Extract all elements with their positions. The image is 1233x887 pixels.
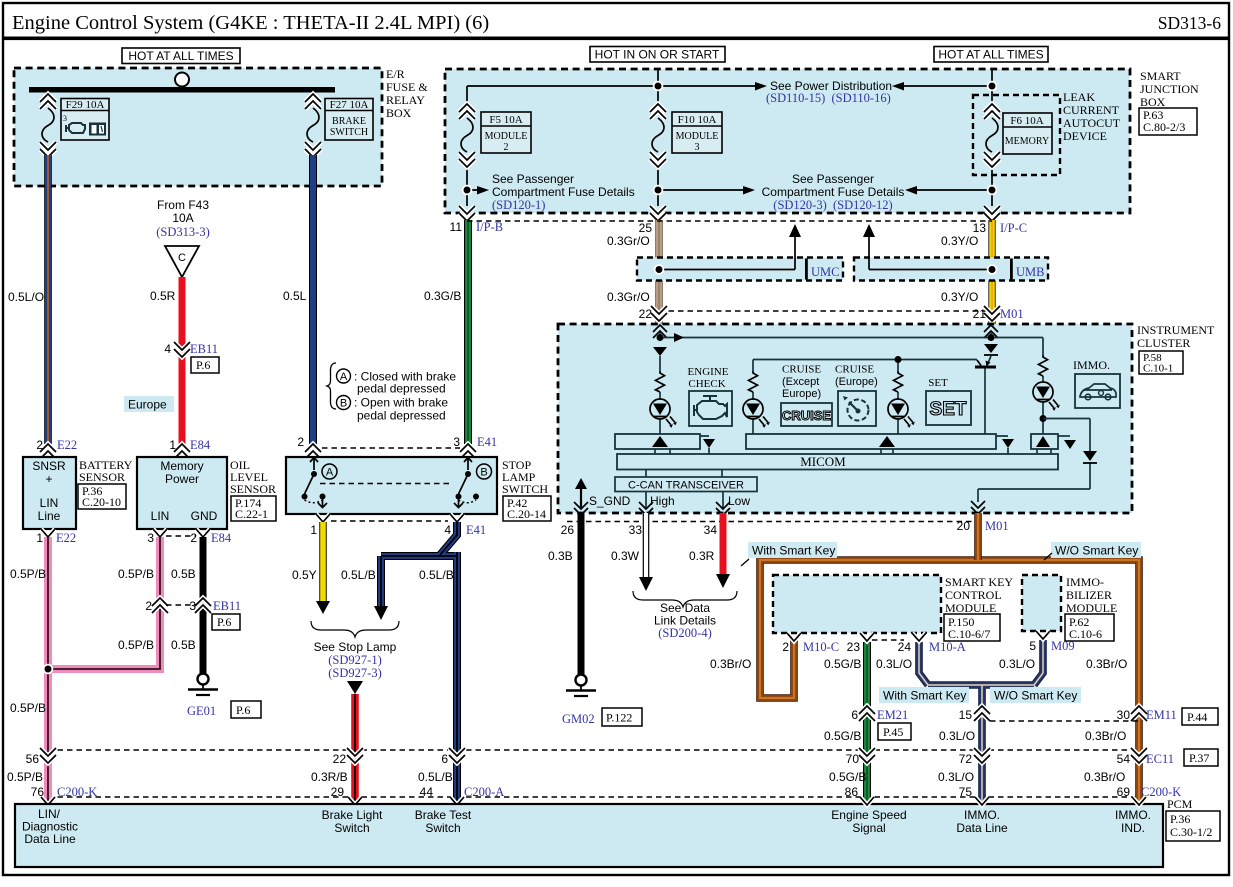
svg-text:See Passenger: See Passenger — [492, 172, 574, 186]
svg-text:C: C — [178, 252, 186, 264]
svg-text:34: 34 — [704, 523, 718, 537]
svg-text:2: 2 — [297, 435, 304, 449]
svg-text:0.5L/O: 0.5L/O — [8, 290, 44, 304]
svg-text:0.3Gr/O: 0.3Gr/O — [607, 234, 650, 248]
svg-text:Compartment Fuse Details: Compartment Fuse Details — [762, 185, 905, 199]
svg-text:0.3Y/O: 0.3Y/O — [941, 290, 978, 304]
svg-text:(SD110-15) (SD110-16): (SD110-15) (SD110-16) — [766, 91, 891, 105]
svg-text:Brake Test: Brake Test — [415, 808, 472, 822]
svg-text:INSTRUMENT: INSTRUMENT — [1137, 323, 1215, 337]
svg-text:HOT AT ALL TIMES: HOT AT ALL TIMES — [938, 48, 1043, 62]
svg-text:0.5P/B: 0.5P/B — [118, 567, 154, 581]
svg-text:0.3Br/O: 0.3Br/O — [1086, 657, 1127, 671]
svg-text:F5 10A: F5 10A — [489, 114, 522, 126]
svg-text:MODULE: MODULE — [1066, 601, 1117, 615]
svg-text:C.10-1: C.10-1 — [1143, 363, 1173, 375]
svg-text:(SD927-1): (SD927-1) — [328, 653, 381, 667]
svg-text:26: 26 — [561, 523, 575, 537]
svg-text:IND.: IND. — [1121, 821, 1145, 835]
svg-text:C.22-1: C.22-1 — [235, 507, 268, 521]
svg-text:P.45: P.45 — [883, 725, 903, 739]
svg-text:M01: M01 — [985, 519, 1009, 533]
svg-text:0.3R/B: 0.3R/B — [311, 770, 348, 784]
svg-text:C-CAN TRANSCEIVER: C-CAN TRANSCEIVER — [628, 480, 744, 492]
svg-text:BILIZER: BILIZER — [1066, 588, 1112, 602]
svg-text:Low: Low — [728, 494, 750, 508]
svg-text:+: + — [45, 472, 52, 486]
svg-text:MEMORY: MEMORY — [1005, 136, 1049, 147]
svg-text:Switch: Switch — [425, 821, 460, 835]
svg-text:P.36: P.36 — [1170, 812, 1190, 826]
svg-text:(SD120-3) (SD120-12): (SD120-3) (SD120-12) — [773, 198, 892, 212]
svg-text:E41: E41 — [477, 435, 497, 449]
svg-text:AUTOCUT: AUTOCUT — [1063, 116, 1121, 130]
svg-text:3: 3 — [63, 114, 67, 123]
svg-text:0.3L/O: 0.3L/O — [938, 770, 974, 784]
svg-text:4: 4 — [444, 523, 451, 537]
svg-text:69: 69 — [1117, 785, 1131, 799]
svg-text:SET: SET — [928, 377, 948, 389]
svg-text:SENSOR: SENSOR — [230, 482, 276, 496]
svg-text:Data Line: Data Line — [956, 821, 1008, 835]
svg-text:With Smart Key: With Smart Key — [883, 689, 966, 703]
svg-text:P.122: P.122 — [606, 711, 632, 725]
svg-text:C.20-14: C.20-14 — [507, 507, 546, 521]
svg-text:10A: 10A — [172, 211, 193, 225]
svg-text:UMB: UMB — [1016, 265, 1044, 279]
svg-text:M10-A: M10-A — [929, 640, 966, 654]
svg-text:0.3L/O: 0.3L/O — [999, 657, 1035, 671]
svg-text:5: 5 — [1029, 639, 1036, 653]
svg-text:From F43: From F43 — [157, 198, 209, 212]
svg-text:(SD200-4): (SD200-4) — [658, 626, 711, 640]
svg-text:3: 3 — [695, 142, 700, 153]
svg-text:Europe): Europe) — [782, 388, 821, 400]
svg-text:GE01: GE01 — [187, 704, 216, 718]
svg-text:70: 70 — [846, 752, 860, 766]
svg-text:C200-K: C200-K — [57, 785, 97, 799]
svg-text:3: 3 — [453, 435, 460, 449]
svg-text:0.5P/B: 0.5P/B — [10, 701, 46, 715]
svg-text:Compartment Fuse Details: Compartment Fuse Details — [492, 185, 635, 199]
svg-text:LIN: LIN — [40, 496, 59, 510]
svg-text:M10-C: M10-C — [803, 640, 839, 654]
svg-text:1: 1 — [36, 531, 43, 545]
svg-text:0.3Br/O: 0.3Br/O — [710, 657, 751, 671]
svg-text:S_GND: S_GND — [589, 494, 631, 508]
svg-text:0.5Y: 0.5Y — [292, 568, 317, 582]
svg-text:SD313-6: SD313-6 — [1158, 13, 1221, 33]
svg-text:30: 30 — [1117, 708, 1131, 722]
svg-text:0.3L/O: 0.3L/O — [876, 657, 912, 671]
svg-text:SENSOR: SENSOR — [79, 470, 125, 484]
svg-text:With Smart Key: With Smart Key — [752, 544, 835, 558]
svg-text:See Stop Lamp: See Stop Lamp — [314, 640, 397, 654]
svg-text:SET: SET — [930, 399, 967, 420]
svg-text:0.5P/B: 0.5P/B — [10, 567, 46, 581]
svg-text:0.3Y/O: 0.3Y/O — [941, 234, 978, 248]
svg-text:MODULE: MODULE — [485, 131, 528, 142]
svg-text:EM11: EM11 — [1146, 708, 1177, 722]
svg-text:Power: Power — [165, 472, 199, 486]
svg-text:IMMO.: IMMO. — [1073, 358, 1110, 372]
svg-text:LEAK: LEAK — [1063, 90, 1095, 104]
svg-text:0.5L/B: 0.5L/B — [418, 770, 453, 784]
svg-text:IMMO.: IMMO. — [964, 808, 1000, 822]
svg-text:High: High — [650, 494, 675, 508]
svg-text:EC11: EC11 — [1146, 752, 1174, 766]
svg-text:0.3G/B: 0.3G/B — [424, 289, 461, 303]
svg-text:E41: E41 — [466, 523, 486, 537]
svg-text:C200-A: C200-A — [464, 785, 504, 799]
svg-text:Switch: Switch — [334, 821, 369, 835]
svg-text:GND: GND — [191, 509, 218, 523]
svg-text:(SD313-3): (SD313-3) — [156, 225, 209, 239]
svg-text:DEVICE: DEVICE — [1063, 129, 1107, 143]
svg-text:(SD927-3): (SD927-3) — [328, 666, 381, 680]
svg-text:MICOM: MICOM — [800, 454, 846, 469]
svg-text:0.5G/B: 0.5G/B — [824, 657, 861, 671]
svg-text:MODULE: MODULE — [945, 601, 996, 615]
svg-text:P.6: P.6 — [217, 615, 231, 629]
svg-text:RELAY: RELAY — [386, 93, 425, 107]
svg-text:HOT AT ALL TIMES: HOT AT ALL TIMES — [128, 49, 233, 63]
svg-text:pedal depressed: pedal depressed — [357, 409, 446, 423]
svg-text:PCM: PCM — [1167, 797, 1193, 811]
svg-text:0.5B: 0.5B — [171, 567, 196, 581]
svg-text:22: 22 — [639, 307, 653, 321]
svg-text:0.5L: 0.5L — [283, 289, 307, 303]
svg-text:(Europe): (Europe) — [835, 376, 878, 388]
svg-text:Signal: Signal — [852, 821, 885, 835]
svg-text:CRUISE: CRUISE — [835, 364, 874, 376]
svg-text:15: 15 — [959, 708, 973, 722]
svg-text:0.5G/B: 0.5G/B — [829, 770, 866, 784]
svg-text:0.3Br/O: 0.3Br/O — [1084, 770, 1125, 784]
svg-text:See Passenger: See Passenger — [792, 172, 874, 186]
svg-text:SWITCH: SWITCH — [502, 482, 548, 496]
svg-text:EB11: EB11 — [190, 342, 218, 356]
svg-text:EM21: EM21 — [877, 708, 908, 722]
svg-text:0.3W: 0.3W — [611, 549, 640, 563]
svg-text:SMART KEY: SMART KEY — [945, 575, 1013, 589]
svg-text:Brake Light: Brake Light — [322, 808, 383, 822]
svg-text:86: 86 — [845, 785, 859, 799]
svg-text:EB11: EB11 — [213, 599, 241, 613]
svg-text:E84: E84 — [190, 438, 211, 452]
svg-text:29: 29 — [331, 785, 345, 799]
svg-text:F6 10A: F6 10A — [1010, 115, 1043, 127]
svg-text:GM02: GM02 — [562, 712, 595, 726]
svg-text:CURRENT: CURRENT — [1063, 103, 1120, 117]
svg-text:C.80-2/3: C.80-2/3 — [1143, 120, 1185, 134]
svg-text:6: 6 — [441, 752, 448, 766]
svg-text:0.3Gr/O: 0.3Gr/O — [607, 290, 650, 304]
svg-text:CRUISE: CRUISE — [782, 364, 821, 376]
svg-text:2: 2 — [145, 599, 152, 613]
svg-text:I/P-C: I/P-C — [1000, 221, 1027, 235]
svg-text:CONTROL: CONTROL — [945, 588, 1002, 602]
svg-text:CRUISE: CRUISE — [782, 408, 831, 423]
svg-text:2: 2 — [190, 531, 197, 545]
svg-text:BOX: BOX — [386, 106, 412, 120]
svg-text:P.6: P.6 — [236, 703, 250, 717]
svg-text:25: 25 — [639, 221, 653, 235]
svg-text:P.44: P.44 — [1187, 710, 1207, 724]
svg-text:54: 54 — [1117, 752, 1131, 766]
svg-text:IMMO-: IMMO- — [1066, 575, 1104, 589]
svg-text:1: 1 — [169, 438, 176, 452]
svg-text:0.3B: 0.3B — [548, 549, 573, 563]
svg-text:CHECK: CHECK — [688, 378, 725, 390]
svg-text:0.5L/B: 0.5L/B — [341, 568, 376, 582]
svg-text:Line: Line — [38, 509, 61, 523]
svg-text:3: 3 — [147, 531, 154, 545]
svg-text:22: 22 — [333, 752, 347, 766]
svg-text:0.3Br/O: 0.3Br/O — [1085, 729, 1126, 743]
svg-text:20: 20 — [957, 519, 971, 533]
svg-text:P.37: P.37 — [1189, 751, 1209, 765]
svg-text:2: 2 — [504, 142, 509, 153]
svg-text:CLUSTER: CLUSTER — [1137, 336, 1190, 350]
svg-text:Data Line: Data Line — [24, 832, 76, 846]
svg-text:Memory: Memory — [160, 459, 203, 473]
svg-text:SNSR: SNSR — [32, 459, 66, 473]
svg-text:33: 33 — [629, 523, 643, 537]
svg-text:E22: E22 — [56, 531, 76, 545]
svg-text:ENGINE: ENGINE — [688, 366, 729, 378]
svg-text:6: 6 — [851, 708, 858, 722]
svg-text:11: 11 — [450, 220, 463, 234]
svg-text:F27 10A: F27 10A — [330, 99, 369, 111]
svg-text:2: 2 — [782, 640, 789, 654]
svg-text:13: 13 — [973, 221, 987, 235]
svg-text:BRAKE: BRAKE — [332, 116, 366, 127]
svg-text:F10 10A: F10 10A — [678, 114, 717, 126]
svg-text:Engine Control System (G4KE :: Engine Control System (G4KE : THETA-II 2… — [12, 12, 489, 34]
svg-text:0.3R: 0.3R — [689, 549, 715, 563]
svg-text:JUNCTION: JUNCTION — [1140, 82, 1199, 96]
svg-text:LIN: LIN — [151, 509, 170, 523]
svg-text:C.10-6/7: C.10-6/7 — [948, 627, 990, 641]
svg-text:: Open with brake: : Open with brake — [354, 396, 448, 410]
svg-text:I/P-B: I/P-B — [476, 220, 503, 234]
svg-text:F29 10A: F29 10A — [66, 99, 105, 111]
svg-text:44: 44 — [420, 785, 434, 799]
svg-text:21: 21 — [973, 307, 987, 321]
svg-text:0.3L/O: 0.3L/O — [939, 729, 975, 743]
svg-text:0.5B: 0.5B — [171, 638, 196, 652]
svg-text:1: 1 — [310, 523, 317, 537]
svg-text:C.20-10: C.20-10 — [82, 495, 121, 509]
svg-text:(Except: (Except — [782, 376, 819, 388]
svg-text:W/O Smart Key: W/O Smart Key — [1055, 544, 1138, 558]
svg-text:(SD120-1): (SD120-1) — [492, 198, 545, 212]
svg-text:Engine Speed: Engine Speed — [831, 808, 906, 822]
svg-text:FUSE &: FUSE & — [386, 80, 428, 94]
svg-text:0.5G/B: 0.5G/B — [824, 729, 861, 743]
svg-text:A: A — [340, 371, 348, 383]
svg-text:E/R: E/R — [386, 67, 405, 81]
svg-text:75: 75 — [959, 785, 973, 799]
svg-text:0.5P/B: 0.5P/B — [118, 638, 154, 652]
svg-text:3: 3 — [189, 599, 196, 613]
svg-text:0.5L/B: 0.5L/B — [419, 568, 454, 582]
svg-text:IMMO.: IMMO. — [1115, 808, 1151, 822]
svg-text:MODULE: MODULE — [676, 131, 719, 142]
svg-text:pedal depressed: pedal depressed — [357, 382, 446, 396]
svg-text:W/O Smart Key: W/O Smart Key — [994, 689, 1077, 703]
svg-text:M01: M01 — [1000, 307, 1024, 321]
svg-text:SMART: SMART — [1140, 69, 1181, 83]
svg-text:C.30-1/2: C.30-1/2 — [1170, 825, 1212, 839]
svg-text:SWITCH: SWITCH — [330, 127, 368, 138]
svg-text:HOT IN ON OR START: HOT IN ON OR START — [595, 48, 720, 62]
svg-text:2: 2 — [36, 438, 43, 452]
svg-text:M09: M09 — [1051, 639, 1075, 653]
svg-text:24: 24 — [898, 640, 912, 654]
svg-text:0.5R: 0.5R — [150, 289, 176, 303]
svg-text:4: 4 — [164, 342, 171, 356]
svg-text:A: A — [326, 467, 334, 479]
svg-text:C200-K: C200-K — [1141, 785, 1181, 799]
svg-text:UMC: UMC — [811, 265, 839, 279]
svg-text:23: 23 — [847, 640, 861, 654]
svg-text:0.5P/B: 0.5P/B — [7, 770, 43, 784]
svg-text:E84: E84 — [211, 531, 232, 545]
svg-text:72: 72 — [959, 752, 973, 766]
svg-text:BOX: BOX — [1140, 95, 1166, 109]
svg-text:Europe: Europe — [128, 398, 167, 412]
svg-text:P.6: P.6 — [196, 358, 210, 372]
svg-text:B: B — [340, 398, 347, 410]
svg-text:E22: E22 — [57, 438, 77, 452]
svg-text:56: 56 — [26, 752, 40, 766]
svg-text:B: B — [480, 467, 487, 479]
